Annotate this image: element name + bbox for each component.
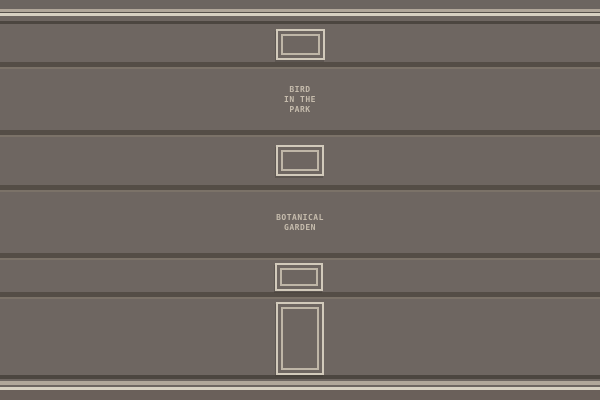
crown-molding-dark-line <box>0 21 600 24</box>
picture-frame-portrait[interactable] <box>276 302 324 375</box>
wall-top-strip <box>0 0 600 9</box>
picture-frame-mat <box>281 34 320 55</box>
exhibit-label-botanical-garden: BOTANICAL GARDEN <box>0 192 600 253</box>
picture-frame-mini[interactable] <box>275 263 323 291</box>
label-line: BIRD <box>289 85 310 95</box>
gallery-wall: BIRD IN THE PARK BOTANICAL GARDEN <box>0 0 600 400</box>
label-line: GARDEN <box>284 223 316 233</box>
picture-frame-mat <box>281 150 319 171</box>
baseboard-beige-stripe <box>0 381 600 385</box>
panel-separator-1 <box>0 62 600 69</box>
panel-separator-4 <box>0 253 600 260</box>
label-line: BOTANICAL <box>276 213 324 223</box>
panel-separator-3 <box>0 185 600 192</box>
picture-frame-top[interactable] <box>276 29 325 60</box>
picture-frame-middle[interactable] <box>276 145 324 176</box>
picture-frame-mat <box>280 268 318 286</box>
crown-molding-cream-stripe <box>0 13 600 16</box>
panel-separator-2 <box>0 130 600 137</box>
picture-frame-mat <box>281 307 319 370</box>
label-line: PARK <box>289 105 310 115</box>
label-line: IN THE <box>284 95 316 105</box>
exhibit-label-bird-in-the-park: BIRD IN THE PARK <box>0 69 600 130</box>
floor-strip <box>0 390 600 400</box>
panel-separator-5 <box>0 292 600 299</box>
baseboard-dark-line <box>0 375 600 379</box>
